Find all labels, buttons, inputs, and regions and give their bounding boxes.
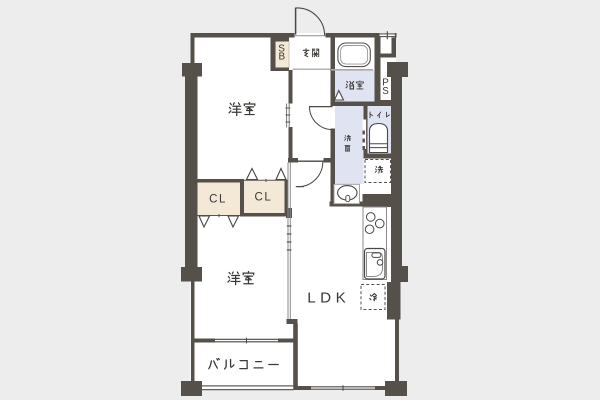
svg-text:CL: CL [255, 191, 273, 203]
svg-text:LDK: LDK [307, 289, 350, 306]
svg-text:S: S [382, 86, 389, 97]
svg-text:B: B [278, 52, 285, 63]
svg-text:CL: CL [209, 193, 227, 205]
